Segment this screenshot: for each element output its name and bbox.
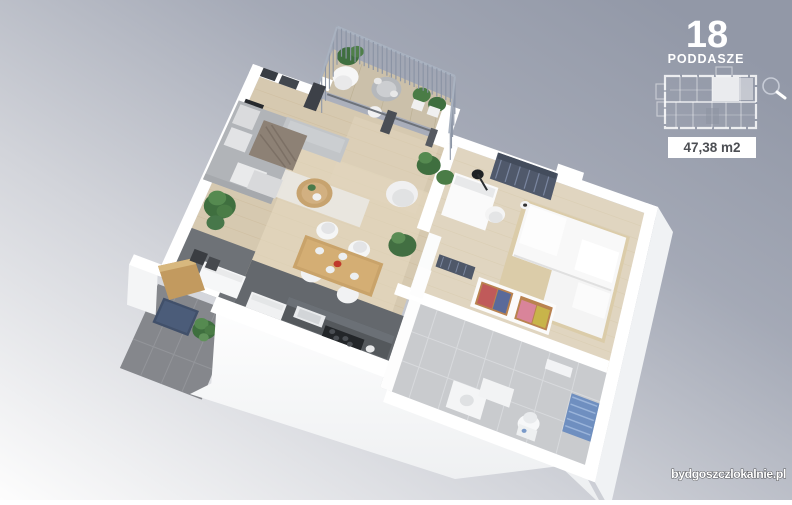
svg-text:18: 18	[686, 14, 728, 56]
svg-text:47,38 m2: 47,38 m2	[683, 140, 740, 155]
svg-text:PODDASZE: PODDASZE	[668, 52, 745, 66]
svg-text:bydgoszczlokalnie.pl: bydgoszczlokalnie.pl	[671, 467, 786, 481]
